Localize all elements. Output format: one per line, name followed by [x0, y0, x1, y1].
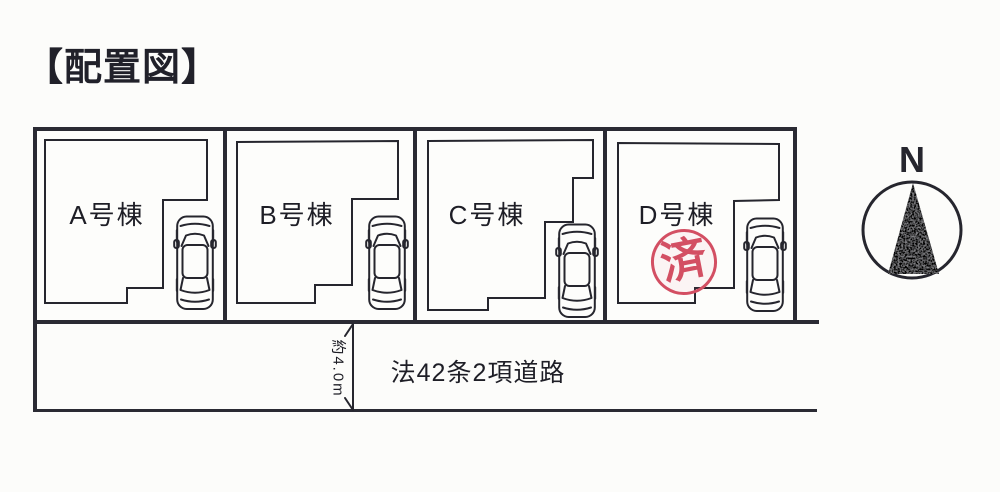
road-bottom-boundary — [33, 409, 817, 412]
sold-stamp-text: 済 — [657, 234, 711, 288]
site-plan-page: 【配置図】 A号棟 B号棟 C号棟 — [0, 0, 1000, 492]
road-label: 法42条2項道路 — [352, 353, 604, 389]
page-title: 【配置図】 — [25, 42, 220, 94]
lot-a-label: A号棟 — [37, 195, 177, 232]
lot-d-label: D号棟 — [607, 195, 747, 232]
lot-a: A号棟 — [37, 131, 223, 320]
lot-c: C号棟 — [413, 131, 603, 320]
road-top-boundary-extension — [795, 320, 819, 324]
road-width-label: 約4.0m — [330, 327, 347, 411]
car-top-view-icon — [556, 225, 598, 318]
lot-c-label: C号棟 — [417, 195, 557, 232]
road-left-boundary — [33, 324, 37, 412]
car-top-view-icon — [366, 217, 408, 310]
car-top-view-icon — [174, 217, 216, 310]
lots-row: A号棟 B号棟 C号棟 D号棟 済 — [33, 127, 797, 324]
lot-b-label: B号棟 — [227, 195, 367, 232]
north-arrow-icon — [860, 178, 964, 282]
lot-d: D号棟 済 — [603, 131, 793, 320]
car-top-view-icon — [744, 219, 786, 312]
compass-north-label: N — [872, 140, 952, 180]
lot-b: B号棟 — [223, 131, 413, 320]
